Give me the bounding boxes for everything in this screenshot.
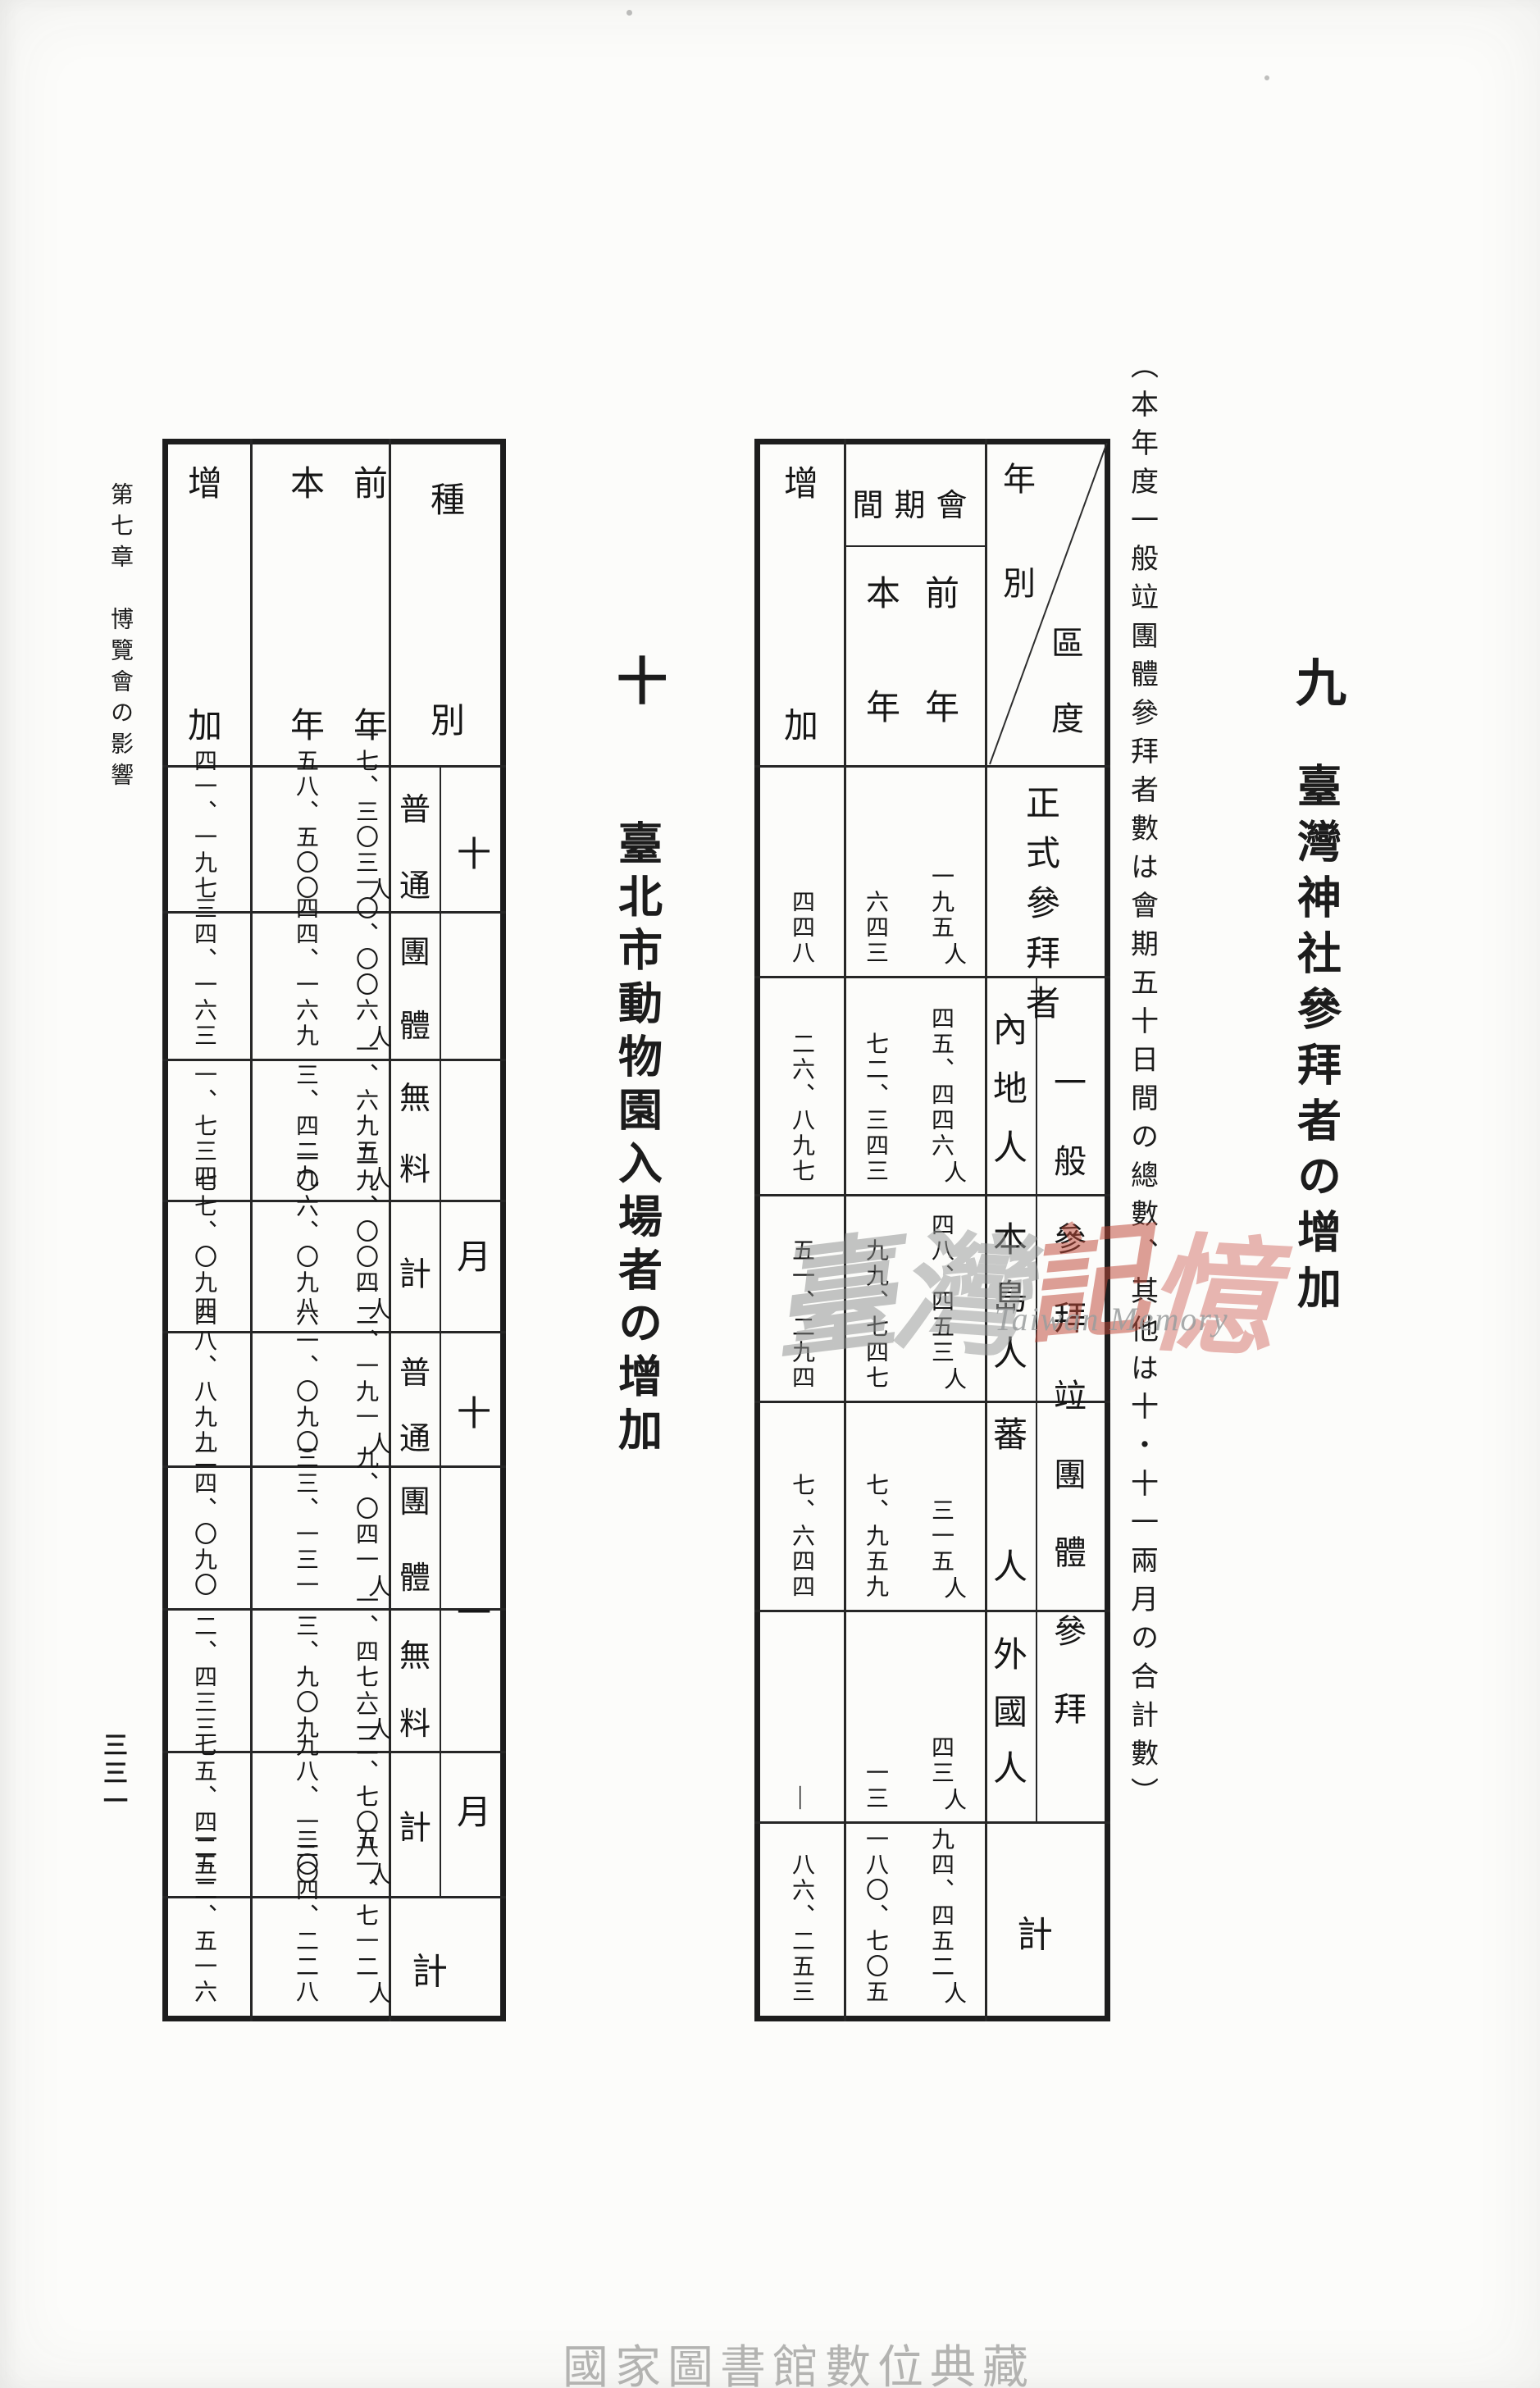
value: 一、四七六 xyxy=(353,1588,378,1716)
shrine-corner-category-label: 區度 xyxy=(1051,617,1084,740)
value: 九、〇四一 xyxy=(353,1446,378,1573)
shrine-section-number: 九 xyxy=(1278,656,1352,707)
row-label-free-nov: 無料 xyxy=(399,1630,431,1743)
row-label-subtotal-nov: 計 xyxy=(399,1800,431,1849)
cell-increase: 四一、一九七 xyxy=(187,749,220,901)
row-label-formal-worshippers: 正式參拜者 xyxy=(1026,776,1060,971)
running-head: 第七章 博覽會の影響 xyxy=(103,482,136,794)
cell-this-year: 七二、三四三 xyxy=(859,1032,891,1184)
grid-line xyxy=(844,439,846,2021)
cell-this-year: 六一、〇九〇 xyxy=(289,1303,321,1456)
row-label-grand-total: 計 xyxy=(412,1935,448,2001)
value: 四八、四五三 xyxy=(928,1213,954,1365)
row-group-november: 十一月 xyxy=(457,1386,491,1834)
unit-nin: 人 xyxy=(936,1367,969,1392)
unit-nin: 人 xyxy=(936,1160,969,1186)
grid-line xyxy=(162,1608,506,1611)
cell-this-year: 一三 xyxy=(859,1761,891,1812)
watermark-char-oku: 憶 xyxy=(1143,1190,1280,1381)
grid-line xyxy=(754,1821,1110,1824)
cell-this-year: 三、九〇九 xyxy=(289,1614,321,1741)
cell-increase: 二四、〇九〇 xyxy=(187,1446,220,1598)
shrine-col-period: 會期間 xyxy=(852,480,977,525)
cell-prev-year: 九、〇四一人 xyxy=(349,1446,381,1598)
unit-nin: 人 xyxy=(361,1981,394,2007)
cell-increase-dash: ― xyxy=(788,1786,814,1812)
cell-increase: 二六、八九七 xyxy=(785,1032,818,1184)
row-label-ordinary-oct: 普通 xyxy=(399,784,431,905)
shrine-col-increase: 增加 xyxy=(784,456,818,748)
zoo-section-number: 十 xyxy=(599,654,673,705)
cell-this-year: 四四、一六九 xyxy=(289,896,321,1049)
value: 一〇、〇〇六 xyxy=(353,871,378,1023)
row-group-october: 十月 xyxy=(457,827,491,1279)
cell-this-year: 三三、一三一 xyxy=(289,1446,321,1598)
value: 一二、一九一 xyxy=(353,1278,378,1430)
value: 三一五 xyxy=(928,1498,954,1575)
cell-this-year: 九九、七四七 xyxy=(859,1238,891,1391)
cell-prev-year: 五一、七一二人 xyxy=(349,1827,381,2005)
cell-prev-year: 四三人 xyxy=(924,1735,957,1812)
cell-increase: 二、四三三 xyxy=(187,1614,220,1741)
cell-this-year: 五八、五〇〇 xyxy=(289,749,321,901)
grid-line xyxy=(389,439,391,2021)
row-label-ordinary-nov: 普通 xyxy=(399,1347,431,1458)
shrine-col-prev-year: 前年 xyxy=(925,566,959,730)
shrine-note: （本年度一般竝團體參拜者數は會期五十日間の總數、其他は十・十一兩月の合計數） xyxy=(1122,351,1162,1816)
unit-nin: 人 xyxy=(936,1981,969,2007)
zoo-corner-type-label: 種別 xyxy=(431,472,465,743)
cell-prev-year: 一〇、〇〇六人 xyxy=(349,871,381,1049)
cell-this-year: 一八〇、七〇五 xyxy=(859,1827,891,2005)
cell-increase: 四八、八九九 xyxy=(187,1303,220,1456)
row-label-foreigners: 外國人 xyxy=(993,1627,1027,1791)
shrine-section-title: 臺灣神社參拜者の增加 xyxy=(1283,763,1348,1320)
row-label-group-oct: 團體 xyxy=(399,927,431,1046)
cell-increase: 一五二、五一六 xyxy=(187,1827,220,2005)
library-credit: 國家圖書館數位典藏 xyxy=(563,2331,1035,2388)
unit-nin: 人 xyxy=(936,1576,969,1602)
scan-speck xyxy=(1264,75,1269,80)
row-label-free-oct: 無料 xyxy=(399,1073,431,1189)
value: 四三 xyxy=(928,1735,954,1786)
cell-increase: 五一、二九四 xyxy=(785,1238,818,1391)
cell-increase: 四四八 xyxy=(785,890,818,966)
zoo-col-this-year: 本年 xyxy=(290,456,325,748)
cell-this-year: 一〇六、〇九八 xyxy=(289,1143,321,1321)
cell-increase: 七、六四四 xyxy=(785,1473,818,1600)
row-label-banjin: 蕃人 xyxy=(993,1407,1027,1589)
zoo-col-prev-year: 前年 xyxy=(353,456,388,748)
cell-this-year: 二〇四、二二八 xyxy=(289,1827,321,2005)
cell-prev-year: 九四、四五二人 xyxy=(924,1827,957,2005)
page-number: 三三一 xyxy=(94,1732,130,1816)
row-label-group-nov: 團體 xyxy=(399,1476,431,1597)
grid-line xyxy=(162,1059,506,1061)
row-label-subtotal-oct: 計 xyxy=(399,1246,431,1296)
cell-increase: 七七、〇九四 xyxy=(187,1169,220,1321)
cell-prev-year: 三一五人 xyxy=(924,1498,957,1600)
cell-prev-year: 四八、四五三人 xyxy=(924,1213,957,1391)
grid-line xyxy=(844,545,985,547)
value: 九四、四五二 xyxy=(928,1827,954,1980)
value: 五一、七一二 xyxy=(353,1827,378,1980)
value: 四五、四四六 xyxy=(928,1006,954,1159)
cell-prev-year: 四五、四四六人 xyxy=(924,1006,957,1184)
row-label-hontojin: 本島人 xyxy=(993,1212,1027,1376)
cell-this-year: 六四三 xyxy=(859,890,891,966)
grid-line xyxy=(250,439,253,2021)
cell-prev-year: 一九五人 xyxy=(924,864,957,966)
cell-this-year: 七、九五九 xyxy=(859,1473,891,1600)
shrine-col-this-year: 本年 xyxy=(866,566,900,730)
cell-increase: 八六、二五三 xyxy=(785,1853,818,2005)
zoo-col-increase: 增加 xyxy=(188,456,222,748)
value: 一九五 xyxy=(928,864,954,941)
value: 二九、〇〇四 xyxy=(353,1143,378,1296)
grid-line xyxy=(985,439,987,2021)
row-group-general-group-worshippers: 一般參拜竝團體參拜 xyxy=(1054,1056,1087,1730)
row-label-total: 計 xyxy=(1017,1894,1053,1968)
grid-line xyxy=(754,765,1110,768)
value: 一七、三〇三 xyxy=(353,723,378,876)
row-label-naichijin: 內地人 xyxy=(993,1002,1027,1170)
scan-speck xyxy=(626,10,632,16)
cell-prev-year: 一二、一九一人 xyxy=(349,1278,381,1456)
unit-nin: 人 xyxy=(936,1788,969,1813)
cell-increase: 三四、一六三 xyxy=(187,896,220,1049)
shrine-corner-year-label: 年別 xyxy=(1003,453,1036,604)
zoo-section-title: 臺北市動物園入場者の增加 xyxy=(604,820,669,1460)
scanned-page: 第七章 博覽會の影響 三三一 （本年度一般竝團體參拜者數は會期五十日間の總數、其… xyxy=(0,0,1540,2388)
unit-nin: 人 xyxy=(936,942,969,968)
